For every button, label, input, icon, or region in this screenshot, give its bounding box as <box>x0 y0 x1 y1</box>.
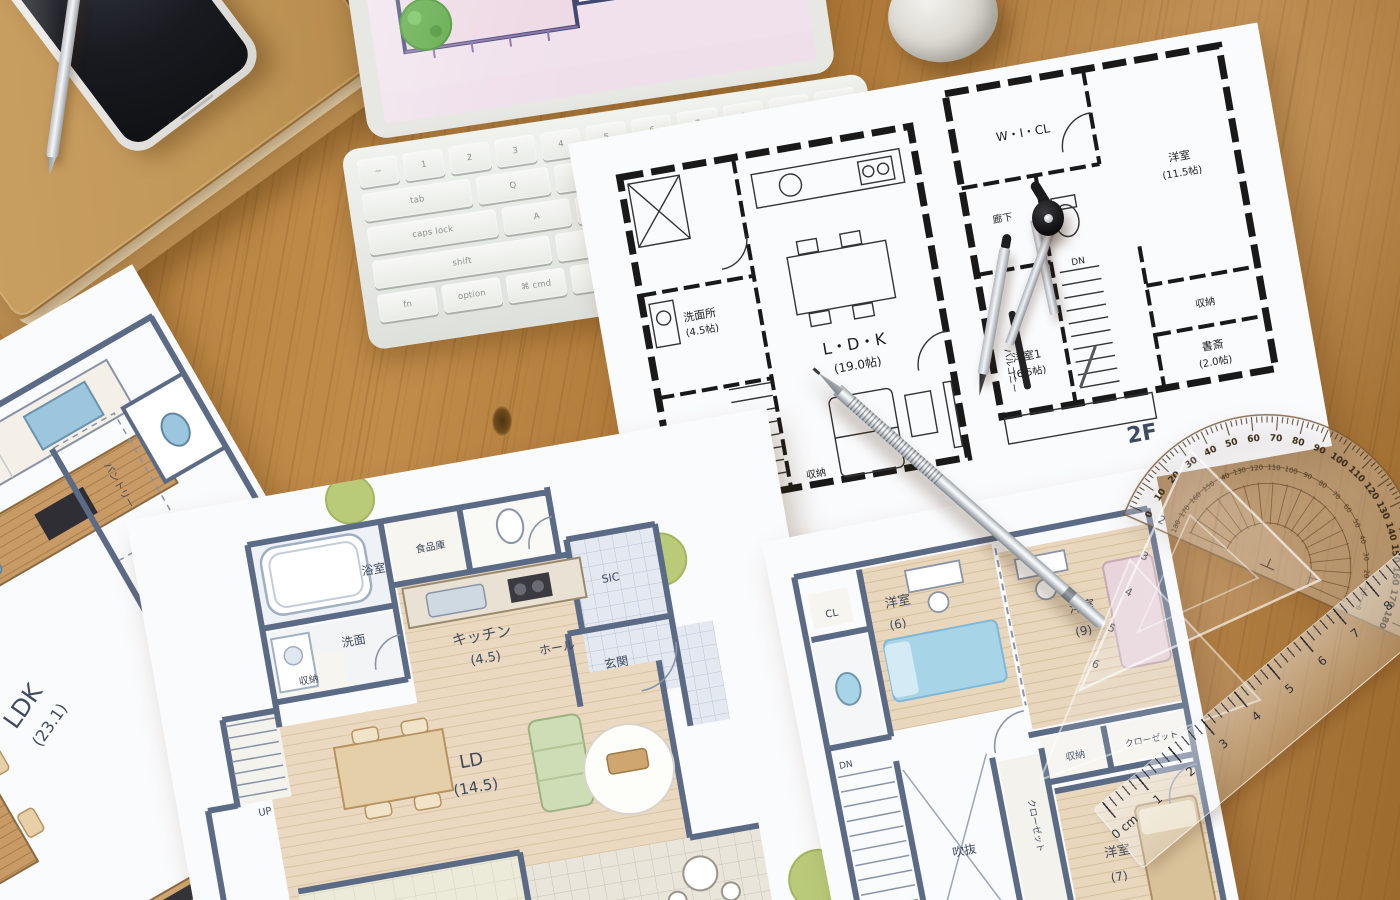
stairs-dn-label: DN <box>838 760 853 772</box>
wood-knot <box>492 406 512 436</box>
room-size-bedroom115: (11.5帖) <box>1161 162 1203 182</box>
keyboard-key: option <box>441 277 503 313</box>
room-label-storage-2f: 収納 <box>1194 294 1216 310</box>
keyboard-key: 3 <box>493 134 537 168</box>
room-label-wicl: W・I・CL <box>995 121 1051 144</box>
ruler-number: 1 <box>1150 791 1165 807</box>
ruler-number: 0 cm <box>1109 812 1141 842</box>
ruler-number: 7 <box>1348 626 1363 642</box>
ruler-number: 6 <box>1315 653 1330 669</box>
ruler-number: 2 <box>1183 764 1198 780</box>
keyboard-key: ⌘ cmd <box>505 267 567 303</box>
room-label-ld: LD <box>458 749 485 774</box>
room-label-washroom-1f: 洗面所 <box>682 306 717 325</box>
room-label-void: 吹抜 <box>951 842 977 860</box>
room-label-storage-1f: 収納 <box>805 465 827 481</box>
keyboard-key: 1 <box>402 148 446 182</box>
ruler-number: 4 <box>1249 708 1264 724</box>
ruler-number: 8 <box>1381 598 1396 614</box>
room-label-corridor: 廊下 <box>991 210 1013 226</box>
keyboard-key: fn <box>377 287 439 323</box>
room-label-dn-bw: DN <box>1071 256 1086 268</box>
stone-paperweight <box>882 0 1004 69</box>
keyboard-key: Q <box>475 167 551 205</box>
stairs-up-label-center: UP <box>258 806 273 819</box>
room-size-ldk-bw: (19.0帖) <box>833 353 883 376</box>
keyboard-key: ~ <box>356 155 400 189</box>
desk-photo: リビング 8畳 押入 ポーチ ~1234567890 tabQWERT caps… <box>0 0 1400 900</box>
keyboard-key: A <box>501 198 573 236</box>
room-label-study: 書斎 <box>1201 336 1225 354</box>
keyboard-key: 2 <box>448 141 492 175</box>
ruler-number: 3 <box>1216 736 1231 752</box>
compass-screw <box>1044 214 1053 223</box>
ruler-number: 5 <box>1282 681 1297 697</box>
room-label-bedroom115: 洋室 <box>1167 147 1191 165</box>
